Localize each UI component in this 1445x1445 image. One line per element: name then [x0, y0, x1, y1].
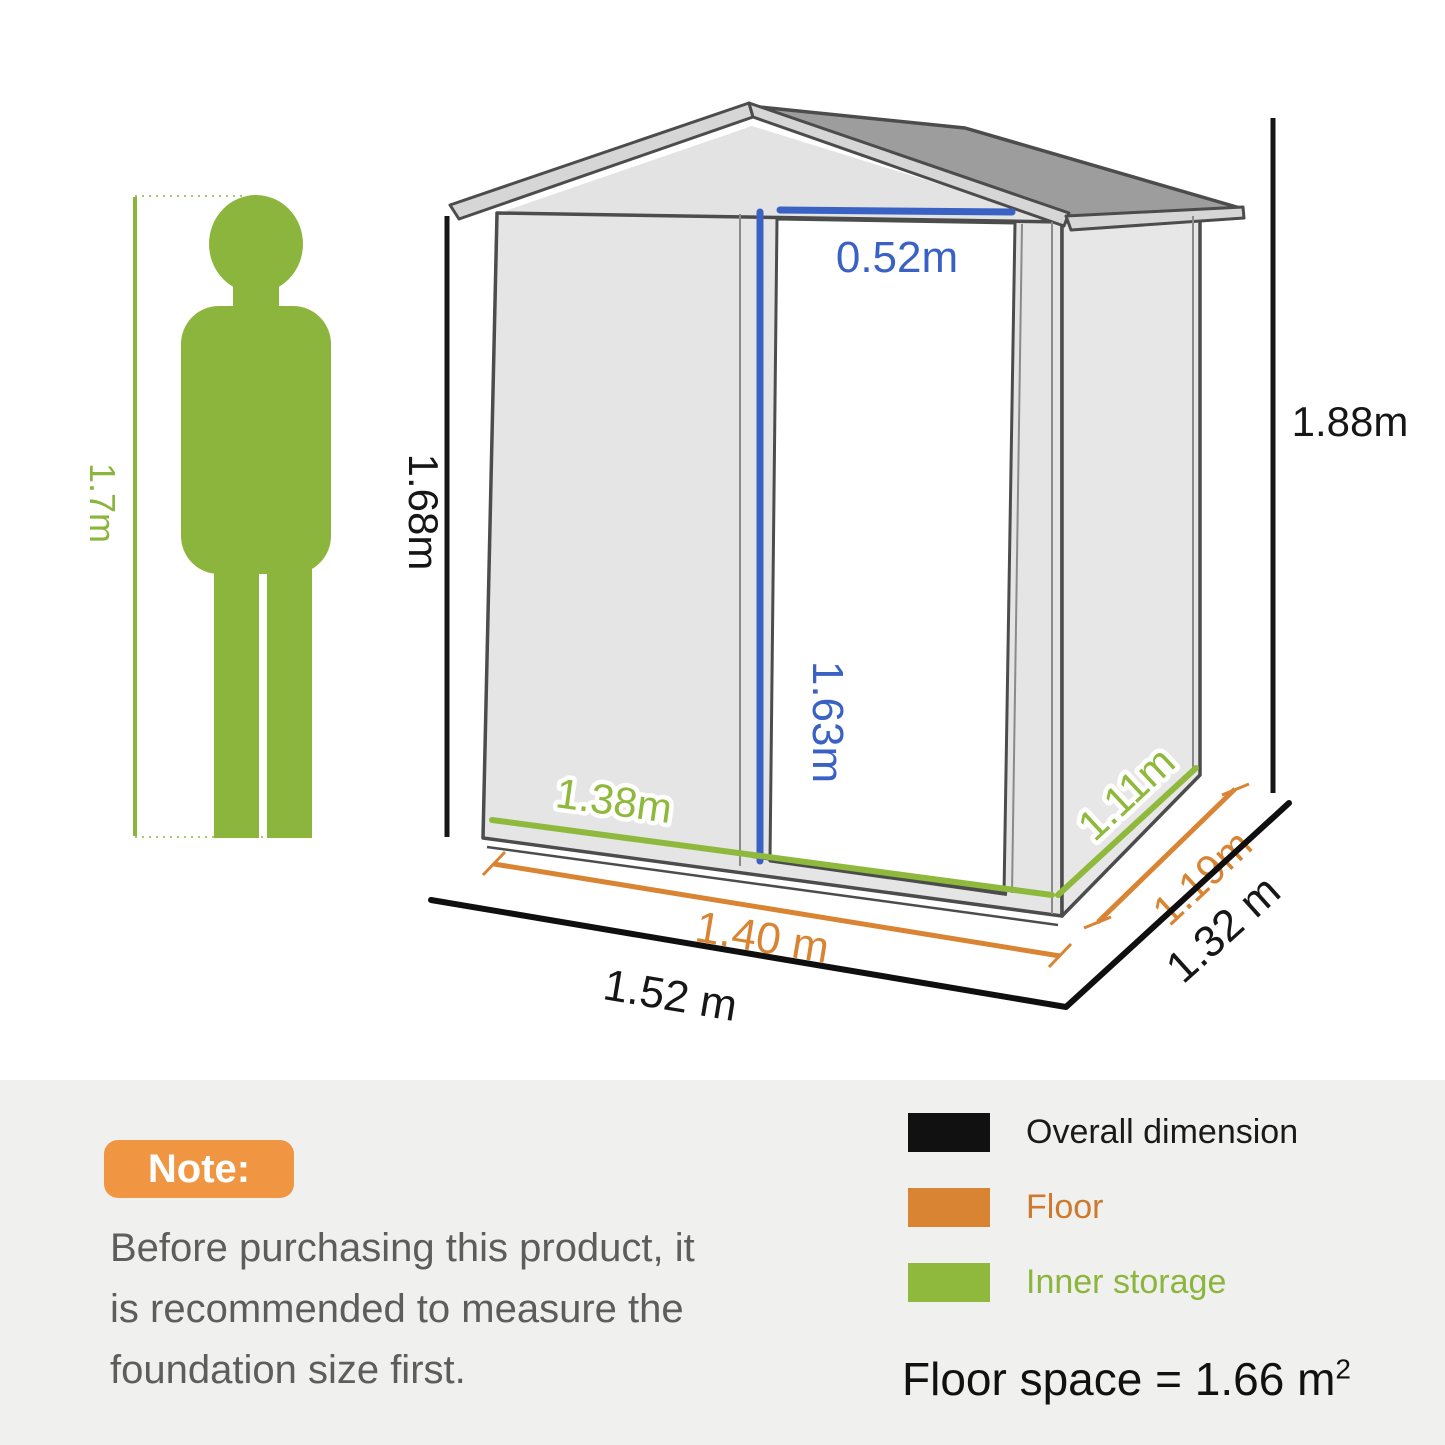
floor-label: Floor: [1026, 1188, 1103, 1227]
note-badge: Note:: [104, 1140, 294, 1198]
person-height-label: 1.7m: [82, 463, 123, 543]
floor-space-exponent: 2: [1335, 1354, 1351, 1385]
person-right-leg: [267, 558, 312, 838]
dim-floor-depth-tick-top: [1222, 784, 1249, 795]
dim-floor-depth-tick-bottom: [1084, 917, 1111, 928]
dim-overall-height-label: 1.88m: [1292, 398, 1409, 445]
note-text-line2: is recommended to measure the: [110, 1279, 810, 1340]
overall-dimension-swatch: [908, 1113, 990, 1152]
info-panel: Note: Before purchasing this product, it…: [0, 1080, 1445, 1445]
legend-row-inner-storage: Inner storage: [908, 1263, 1428, 1302]
inner-storage-label: Inner storage: [1026, 1263, 1226, 1302]
floor-swatch: [908, 1188, 990, 1227]
legend: Overall dimension Floor Inner storage: [908, 1113, 1428, 1338]
shed-door-opening: [770, 219, 1015, 894]
dim-door-height-label: 1.63m: [803, 661, 852, 783]
dim-door-width-label: 0.52m: [836, 233, 958, 282]
dim-overall-width-label: 1.52 m: [600, 960, 741, 1031]
dim-wall-height-label: 1.68m: [400, 454, 447, 571]
note-text-line1: Before purchasing this product, it: [110, 1218, 810, 1279]
overall-dimension-label: Overall dimension: [1026, 1113, 1298, 1152]
dim-door-width-line: [780, 210, 1012, 212]
note-badge-label: Note:: [148, 1147, 250, 1192]
legend-row-floor: Floor: [908, 1188, 1428, 1227]
note-text: Before purchasing this product, it is re…: [110, 1218, 810, 1401]
person-figure: [181, 195, 331, 838]
floor-space-value: Floor space = 1.66 m2: [902, 1352, 1351, 1406]
person-left-leg: [214, 558, 259, 838]
legend-row-overall: Overall dimension: [908, 1113, 1428, 1152]
inner-storage-swatch: [908, 1263, 990, 1302]
note-text-line3: foundation size first.: [110, 1340, 810, 1401]
person-torso: [181, 306, 331, 574]
floor-space-text: Floor space = 1.66 m: [902, 1353, 1335, 1405]
